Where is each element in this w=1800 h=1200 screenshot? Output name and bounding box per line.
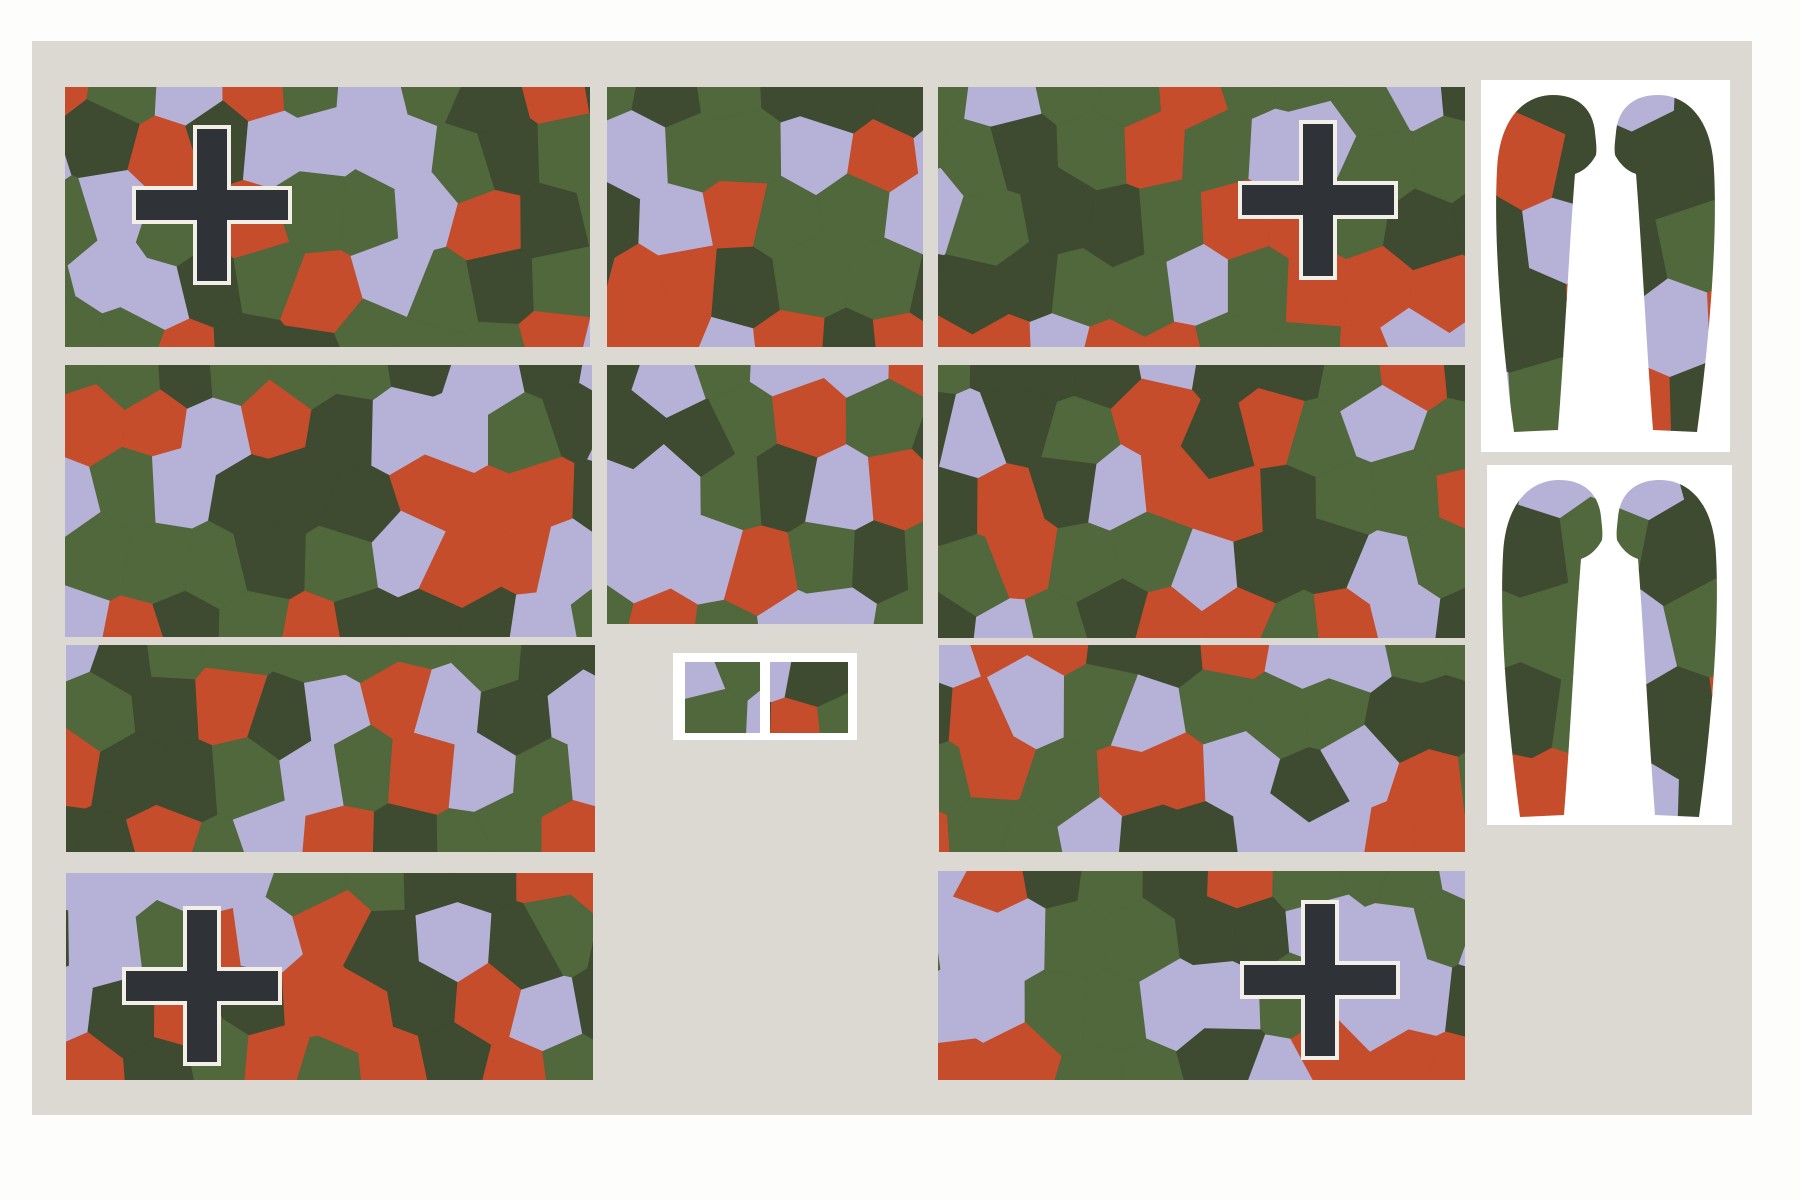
- camo-cell: [1631, 667, 1720, 781]
- small-squares-piece: [673, 653, 857, 740]
- gear-fairing-pair: [1481, 80, 1730, 452]
- camo-cell: [1624, 444, 1713, 452]
- camo-cell: [1083, 969, 1147, 1050]
- camo-panel-row3-right: [939, 645, 1465, 852]
- camo-cell: [788, 522, 855, 594]
- small-pattern-square-1: [685, 662, 760, 733]
- camo-cell: [1045, 901, 1106, 978]
- camo-cell: [719, 109, 781, 184]
- camo-cell: [532, 247, 590, 318]
- camo-pattern: [1481, 80, 1730, 452]
- camo-cell: [639, 184, 714, 256]
- camo-panel-row4-right: [938, 871, 1465, 1080]
- camo-cell: [666, 113, 720, 193]
- gear-fairing-pair: [1487, 465, 1732, 825]
- camo-cell: [1545, 434, 1632, 452]
- camo-pattern: [66, 645, 595, 852]
- camo-panel-row1-left: [65, 87, 590, 347]
- camo-cell: [1532, 748, 1601, 825]
- camo-cell: [467, 249, 535, 324]
- camo-pattern: [1487, 465, 1732, 825]
- camo-cell: [607, 517, 671, 604]
- camo-cell: [1488, 505, 1569, 598]
- camo-panel-row4-left: [66, 873, 593, 1080]
- camo-cell: [1481, 269, 1567, 374]
- camo-cell: [868, 449, 923, 531]
- camo-cell: [1481, 363, 1513, 452]
- camo-panel-row1-right: [938, 87, 1465, 347]
- camo-cell: [1632, 111, 1730, 220]
- camo-cell: [1487, 499, 1493, 611]
- camo-cell: [1567, 279, 1643, 373]
- camo-cell: [1481, 109, 1497, 204]
- camo-pattern: [939, 645, 1465, 852]
- camo-cell: [938, 1039, 990, 1080]
- camo-pattern: [607, 87, 923, 347]
- camo-panel-row2-left: [65, 365, 592, 637]
- camo-panel-row2-mid: [607, 365, 923, 624]
- camo-cell: [1487, 752, 1534, 825]
- camo-cell: [1702, 430, 1730, 452]
- camo-pattern: [65, 365, 592, 637]
- camo-cell: [1509, 356, 1599, 452]
- camo-cell: [1481, 446, 1490, 453]
- camo-cell: [853, 521, 909, 605]
- camo-cell: [1631, 279, 1711, 378]
- camo-cell: [1715, 490, 1732, 583]
- camo-pattern: [938, 365, 1465, 638]
- camo-cell: [1413, 116, 1465, 204]
- camo-cell: [712, 247, 781, 329]
- camo-panel-row3-left: [66, 645, 595, 852]
- camo-cell: [144, 645, 206, 680]
- camo-cell: [1416, 814, 1465, 852]
- gear-fairing-sheet-bottom: [1487, 465, 1732, 825]
- camo-cell: [1487, 663, 1562, 759]
- small-pattern-square-2: [770, 662, 848, 733]
- camo-cell: [519, 311, 590, 347]
- gear-fairing-sheet-top: [1481, 80, 1730, 452]
- camo-cell: [538, 114, 590, 194]
- camo-cell: [1520, 583, 1590, 680]
- camo-cell: [1481, 440, 1557, 453]
- camo-panel-row1-mid: [607, 87, 923, 347]
- pattern-sheet-page: [0, 0, 1800, 1200]
- camo-cell: [938, 467, 978, 546]
- camo-cell: [1552, 668, 1641, 765]
- camo-cell: [1596, 361, 1672, 452]
- camo-pattern: [607, 365, 923, 624]
- camo-cell: [120, 523, 192, 604]
- camo-cell: [1481, 277, 1493, 378]
- camo-cell: [1487, 667, 1502, 774]
- camo-panel-row2-right: [938, 365, 1465, 638]
- camo-cell: [388, 733, 455, 815]
- camo-cell: [1670, 361, 1730, 452]
